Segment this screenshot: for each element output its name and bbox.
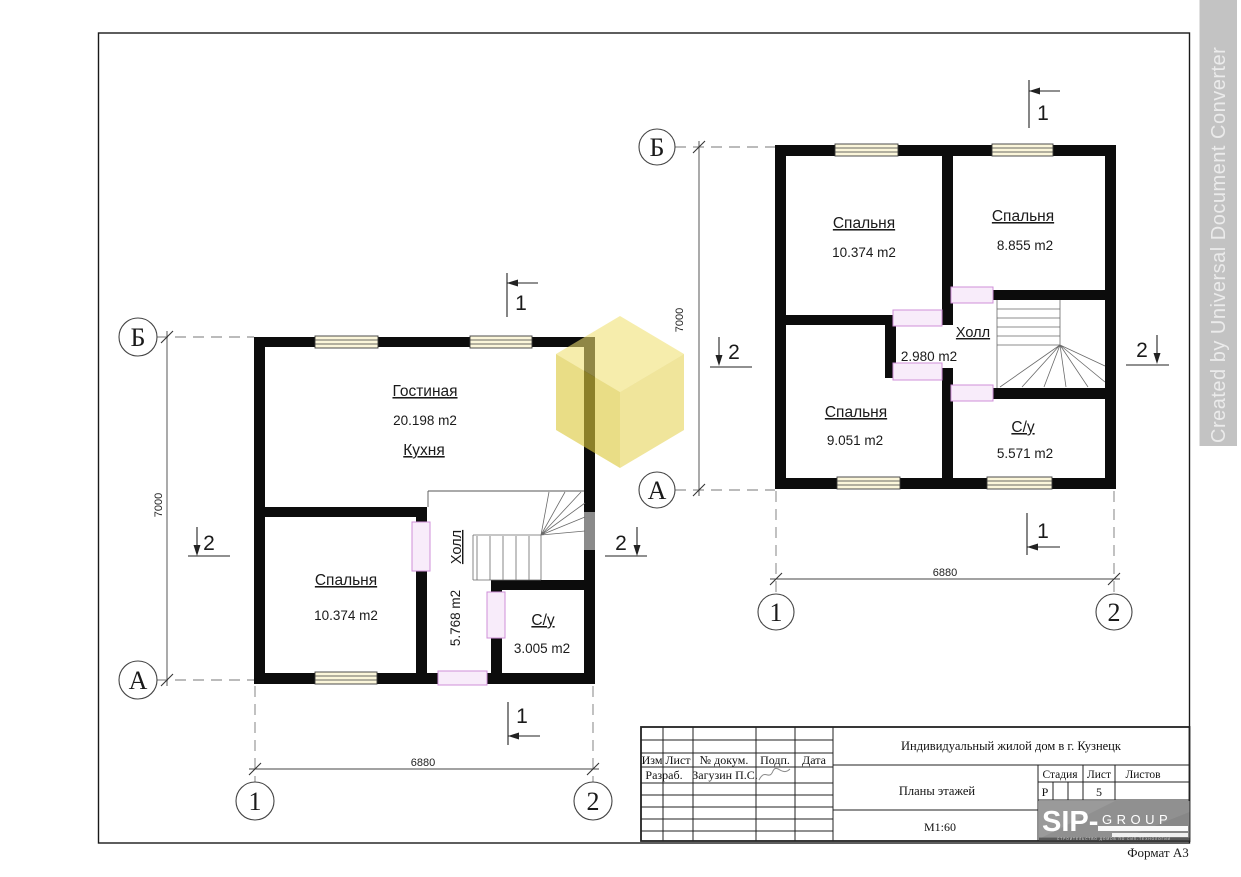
section-marker-1-top: 1 [515,292,527,315]
axis-label-2: 2 [587,787,600,816]
axis-label-1: 1 [770,598,783,627]
section-marker-2-right: 2 [1136,339,1148,362]
room-area: 5.768 m2 [448,590,463,646]
format-label: Формат А3 [1127,845,1188,860]
section-marker-2-left: 2 [728,341,740,364]
header-podp: Подп. [760,753,790,767]
room-label: Спальня [825,404,887,421]
header-list: Лист [665,753,691,767]
room-area: 8.855 m2 [997,238,1053,253]
razrab-name: Загузин П.С. [692,768,758,782]
section-marker-2-right: 2 [615,532,627,555]
room-label: Спальня [992,208,1054,225]
axis-label-b: Б [650,133,665,162]
axis-label-1: 1 [249,787,262,816]
logo-group-text: GROUP [1102,812,1172,827]
room-label: С/у [531,612,555,629]
drawing-title: Планы этажей [899,784,976,798]
section-marker-1-bottom: 1 [516,705,528,728]
room-area: 3.005 m2 [514,641,570,656]
header-data: Дата [802,753,827,767]
watermark-text: Created by Universal Document Converter [1208,47,1230,443]
dimension-height: 7000 [153,493,165,517]
axis-label-2: 2 [1108,598,1121,627]
room-area: 10.374 m2 [314,608,378,623]
room-label: Кухня [403,442,444,459]
axis-label-a: А [648,476,667,505]
room-label: Спальня [315,572,377,589]
axis-label-b: Б [131,323,146,352]
drawing-page: Гостиная 20.198 m2 Кухня Спальня 10.374 … [0,0,1241,877]
axis-label-a: А [129,666,148,695]
room-label: Холл [449,530,465,564]
listov-label: Листов [1125,769,1161,781]
converter-watermark: Created by Universal Document Converter [1200,0,1238,446]
scale-value: М1:60 [924,820,956,834]
section-marker-1-top: 1 [1037,102,1049,125]
room-label: Спальня [833,215,895,232]
sip-group-logo: SIP- GROUP СТРОИТЕЛЬСТВО ДОМОВ ПО СИП-ТЕ… [1039,801,1190,841]
room-label: С/у [1011,419,1035,436]
section-marker-1-bottom: 1 [1037,520,1049,543]
dimension-width: 6880 [411,757,435,769]
stadia-label: Стадия [1042,769,1078,781]
room-area: 9.051 m2 [827,433,883,448]
logo-tagline: СТРОИТЕЛЬСТВО ДОМОВ ПО СИП-ТЕХНОЛОГИИ [1057,837,1171,841]
section-marker-2-left: 2 [203,532,215,555]
list-label: Лист [1087,769,1111,781]
room-label: Холл [956,325,990,341]
list-value: 5 [1096,785,1102,799]
header-doc: № докум. [700,753,749,767]
stadia-value: Р [1042,785,1049,799]
dimension-height: 7000 [674,308,686,332]
room-area: 2.980 m2 [901,349,957,364]
logo-sip-text: SIP- [1042,806,1098,838]
razrab-label: Разраб. [645,768,682,782]
room-label: Гостиная [392,383,457,400]
wall-opening [584,512,595,550]
room-area: 20.198 m2 [393,413,457,428]
project-title: Индивидуальный жилой дом в г. Кузнецк [901,739,1122,753]
room-area: 5.571 m2 [997,446,1053,461]
room-area: 10.374 m2 [832,245,896,260]
header-izm: Изм [642,753,663,767]
drawing-canvas: Гостиная 20.198 m2 Кухня Спальня 10.374 … [0,0,1241,877]
dimension-width: 6880 [933,567,957,579]
